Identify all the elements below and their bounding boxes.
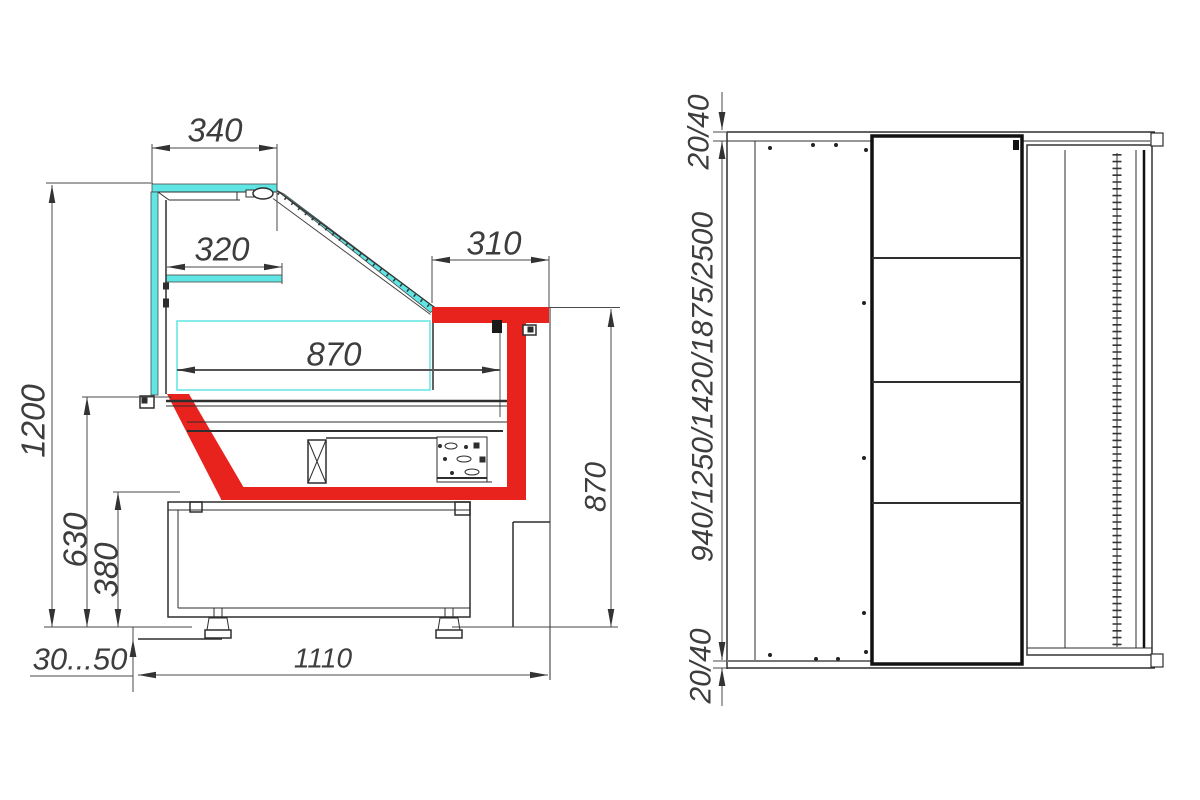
base-cabinet: [168, 502, 470, 617]
counter-bottom-band: [221, 487, 526, 500]
dim-label-1200: 1200: [15, 384, 52, 458]
deck-edge-bracket: [492, 320, 502, 333]
glass-diagonal-inner-edge: [273, 199, 431, 315]
dim-870-depth: 870: [177, 336, 500, 374]
screw-dots: [768, 143, 868, 661]
display-opening-outline: [177, 321, 430, 390]
dim-label-870-depth: 870: [306, 336, 362, 373]
dim-label-rear-gap-top: 20/40: [683, 94, 716, 170]
leveling-foot-right: [436, 608, 462, 638]
top-view-dimensions: 20/40 940/1250/1420/1875/2500 20/40: [683, 92, 728, 706]
control-panel: [437, 437, 492, 482]
dim-label-310: 310: [466, 225, 522, 262]
counter-back-wall: [507, 323, 526, 498]
dim-1110: 1110: [138, 643, 548, 679]
dim-340: 340: [152, 112, 277, 232]
glass-shelf: [166, 275, 282, 282]
dim-label-380: 380: [88, 542, 125, 598]
side-panel: [1027, 145, 1152, 655]
corner-notch-bottom: [1151, 654, 1163, 667]
dim-310: 310: [432, 225, 549, 308]
dim-label-320: 320: [194, 231, 250, 268]
leveling-foot-left: [205, 608, 231, 638]
dim-label-870-height: 870: [580, 462, 613, 512]
dim-870-height: 870: [549, 308, 620, 628]
lamp: [253, 188, 273, 199]
technical-drawing-sheet: 340 320 310: [0, 0, 1200, 800]
counter-top-bar: [432, 307, 549, 323]
dim-label-1110: 1110: [294, 643, 353, 674]
evaporator-box: [308, 440, 326, 483]
corner-notch-top: [1151, 133, 1163, 146]
drawing-svg: 340 320 310: [0, 0, 1200, 800]
dim-label-340: 340: [187, 112, 243, 149]
dim-label-rear-gap-bottom: 20/40: [685, 628, 718, 704]
side-section-view: 340 320 310: [15, 112, 621, 693]
worktop-sections: [872, 136, 1022, 664]
dim-380: 380: [88, 492, 181, 627]
glass-panels: [151, 184, 436, 395]
counter-front-diagonal: [167, 394, 244, 499]
dim-30-50: 30...50: [30, 627, 136, 692]
top-view-structure: [727, 132, 1163, 669]
dim-label-length-options: 940/1250/1420/1875/2500: [687, 212, 720, 563]
glass-front: [151, 192, 158, 395]
top-plan-view: 20/40 940/1250/1420/1875/2500 20/40: [683, 92, 1164, 706]
glass-diagonal-edge: [277, 191, 436, 309]
dim-label-30-50: 30...50: [33, 642, 128, 677]
